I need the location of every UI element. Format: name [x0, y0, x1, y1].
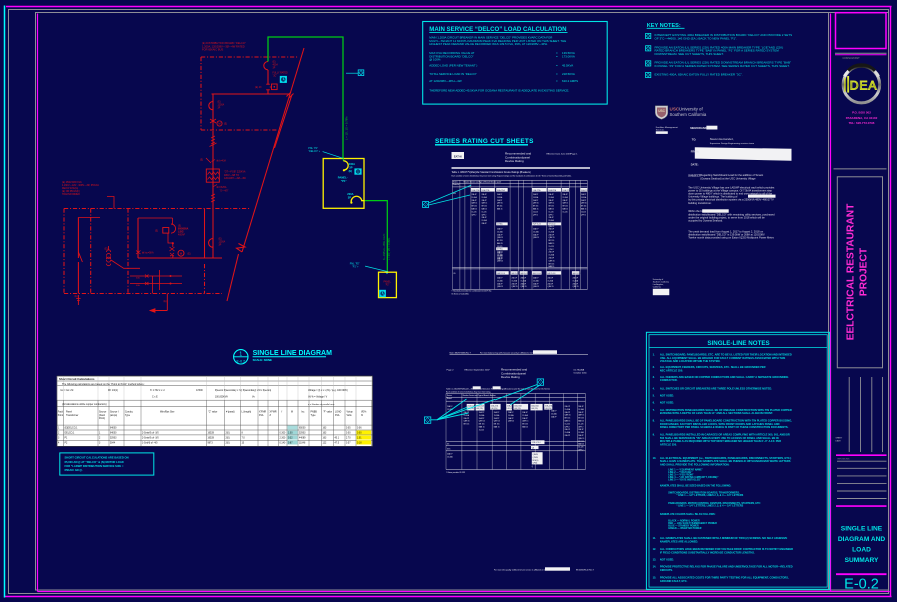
svg-text:20A 1P: 20A 1P	[578, 405, 584, 408]
svg-text:Wire/Bus Size: Wire/Bus Size	[160, 411, 175, 414]
svg-text:NAMEPLATES SHALL BE SIZED BASE: NAMEPLATES SHALL BE SIZED BASED ON THE F…	[660, 484, 732, 487]
svg-text:* LINE 1 — 1/4” LETTERS, LINE: * LINE 1 — 1/4” LETTERS, LINES 2, 3, & 4…	[677, 505, 744, 508]
svg-text:2(0): 2(0)	[226, 442, 230, 444]
svg-text:20A 1P: 20A 1P	[551, 410, 557, 413]
svg-text:3P: 3P	[273, 68, 276, 70]
svg-text:173.0KVA: 173.0KVA	[562, 54, 575, 58]
svg-text:Transformer: Transformer	[66, 414, 79, 417]
svg-text:20A 1P: 20A 1P	[479, 411, 485, 414]
svg-text:QBH 15: QBH 15	[549, 203, 555, 205]
svg-text:Effective September 2007: Effective September 2007	[465, 369, 491, 372]
svg-text:Table 1. 480/277V(Max)Vac Stan: Table 1. 480/277V(Max)Vac Standard Combi…	[452, 171, 531, 174]
svg-text:QBH 15: QBH 15	[548, 286, 554, 288]
svg-text:“P1”: “P1”	[341, 179, 348, 183]
svg-text:QBH 15: QBH 15	[533, 237, 539, 239]
svg-text:BAB 15: BAB 15	[522, 426, 528, 429]
svg-text:QBH 15: QBH 15	[549, 260, 555, 262]
svg-text:3P: 3P	[349, 165, 352, 169]
svg-text:AND SHALL PROVIDE THE FOLLOWI: AND SHALL PROVIDE THE FOLLOWING INFORMAT…	[660, 462, 730, 466]
svg-text:© Eaton provides 65 XXX: © Eaton provides 65 XXX	[446, 471, 466, 474]
svg-text:NAMEPLATE COLORS SHALL BE AS F: NAMEPLATE COLORS SHALL BE AS FOLLOWS:	[660, 513, 716, 516]
svg-text:9873: 9873	[208, 442, 214, 444]
svg-text:ARTICLE 250.: ARTICLE 250.	[660, 442, 677, 446]
svg-text:QPH 2: QPH 2	[497, 249, 502, 251]
svg-text:11048: 11048	[299, 442, 306, 444]
svg-text:USC: USC	[658, 109, 665, 113]
svg-text:CONDUCTOR.: CONDUCTOR.	[660, 378, 678, 382]
svg-text:EAT·N: EAT·N	[454, 154, 462, 158]
svg-text:The following calculations are: The following calculations are based on …	[62, 383, 145, 386]
svg-text:Steven Hernandez,: Steven Hernandez,	[710, 137, 734, 141]
svg-text:PNBB: PNBB	[311, 412, 318, 414]
svg-text:© Standard pre-feeders for com: © Standard pre-feeders for combination l…	[452, 290, 492, 293]
svg-text:2.: 2.	[653, 365, 655, 369]
svg-text:65,000 AIC@ AT “DELCO” & (N): 65,000 AIC@ AT “DELCO” & (N) MOTOR LOAD	[65, 460, 124, 464]
svg-text:FULLY RATED: FULLY RATED	[273, 72, 289, 75]
svg-text:E-0.2: E-0.2	[237, 360, 246, 364]
svg-text:20A 2P: 20A 2P	[549, 257, 555, 260]
svg-text:Panel: Panel	[66, 412, 72, 414]
svg-text:%: %	[361, 415, 363, 417]
svg-text:1.00: 1.00	[288, 433, 293, 435]
svg-text:15-30A: 15-30A	[522, 414, 528, 417]
svg-text:Breaker Device and Type of Bra: Breaker Device and Type of Branch Breake…	[464, 181, 502, 184]
svg-text:Series: Series	[453, 181, 458, 184]
svg-text:QPH 2: QPH 2	[533, 214, 538, 216]
svg-text:Note: 480/575V(M) Rev 7: Note: 480/575V(M) Rev 7	[450, 352, 471, 355]
svg-text:HIGHEST PEAK DEMAND VALUE RECO: HIGHEST PEAK DEMAND VALUE RECORDED WAS 1…	[429, 42, 548, 46]
svg-text:0.300: 0.300	[280, 433, 286, 435]
svg-text:15-30A: 15-30A	[549, 230, 555, 233]
svg-text:218.5KVA: 218.5KVA	[562, 72, 575, 76]
svg-text:LGE (22k): LGE (22k)	[491, 408, 498, 410]
svg-text:L (length): L (length)	[242, 411, 252, 414]
svg-text:(E): (E)	[218, 102, 221, 104]
svg-text:BR 155: BR 155	[578, 418, 584, 420]
svg-text:2-Sets(4) of -3/0: 2-Sets(4) of -3/0	[142, 437, 159, 440]
svg-text:20A 1P: 20A 1P	[497, 228, 503, 231]
svg-text:45.1: 45.1	[335, 438, 340, 440]
svg-text:⊠ I=625A: ⊠ I=625A	[217, 186, 227, 189]
svg-text:PASADENA, CA 91102: PASADENA, CA 91102	[846, 116, 878, 120]
svg-text:13.: 13.	[653, 557, 657, 561]
svg-text:Southern California: Southern California	[670, 112, 707, 117]
svg-text:Each condition of series liste: Each condition of series listed below, t…	[452, 174, 573, 177]
svg-text:EXISTING 400A, 65KAIC EATON FU: EXISTING 400A, 65KAIC EATON FULLY RATED …	[655, 72, 743, 76]
svg-text:1200A: 1200A	[219, 241, 226, 244]
svg-text:Voltage = (l) x L x (%) / (e.g: Voltage = (l) x L x (%) / (e.g. 100 000V…	[308, 389, 348, 392]
svg-text:Type: Type	[125, 415, 131, 417]
svg-text:14.: 14.	[653, 565, 657, 569]
svg-text:(E) OR 65KVA(F): (E) OR 65KVA(F)	[62, 190, 80, 193]
svg-text:52903: 52903	[299, 433, 306, 435]
svg-text:GHB 15-100: GHB 15-100	[497, 273, 506, 275]
svg-text:47.5: 47.5	[335, 442, 340, 444]
svg-text:MULTIPLE PANELS AS REQUIRED WI: MULTIPLE PANELS AS REQUIRED WITH TOP MOS…	[660, 439, 781, 443]
svg-text:“DELCO” +: “DELCO” +	[308, 150, 320, 153]
svg-text:2(0): 2(0)	[226, 438, 230, 440]
svg-text:KVA: KVA	[335, 414, 340, 417]
svg-text:(All calculations utilize copp: (All calculations utilize copper conduct…	[62, 403, 107, 406]
svg-text:BR 155: BR 155	[482, 206, 487, 208]
svg-text:=: =	[556, 54, 558, 58]
svg-text:20A 1P: 20A 1P	[512, 277, 518, 280]
svg-text:(E): (E)	[164, 301, 167, 303]
svg-text:For more balance buy with meas: For more balance buy with measure secure…	[480, 352, 533, 355]
svg-text:HQP 15-20: HQP 15-20	[533, 224, 541, 226]
svg-text:GROUND FAULT, ETC.: GROUND FAULT, ETC.	[660, 579, 688, 583]
svg-text:DATE:: DATE:	[691, 162, 699, 166]
svg-text:15-30A: 15-30A	[533, 279, 539, 282]
svg-text:QBHW,: QBHW,	[533, 454, 539, 456]
svg-text:20A 2P: 20A 2P	[578, 434, 584, 437]
svg-text:15-30A: 15-30A	[578, 408, 584, 411]
svg-text:15-30A: 15-30A	[549, 254, 555, 257]
svg-text:REVISIONS: REVISIONS	[838, 459, 850, 461]
svg-text:4.: 4.	[653, 387, 655, 391]
svg-text:KVA: KVA	[259, 414, 264, 417]
svg-text:1-Set(4) of -4/0: 1-Set(4) of -4/0	[142, 441, 158, 444]
svg-text:1: 1	[239, 351, 242, 357]
svg-text:EELCTRICAL RESTAURANT: EELCTRICAL RESTAURANT	[846, 203, 857, 340]
svg-text:SHEET: SHEET	[836, 438, 843, 440]
svg-text:15-30A: 15-30A	[497, 279, 503, 282]
svg-text:20A 2P: 20A 2P	[497, 282, 503, 285]
svg-text:QBH 15: QBH 15	[578, 438, 584, 440]
svg-text:QBH 15: QBH 15	[472, 203, 478, 205]
svg-text:0.06: 0.06	[357, 428, 362, 430]
svg-text:DELTA WYE(G): DELTA WYE(G)	[62, 187, 78, 190]
svg-text:20A 2P: 20A 2P	[494, 417, 500, 420]
svg-text:QPH 2: QPH 2	[549, 249, 554, 251]
svg-text:QBH 15: QBH 15	[497, 260, 503, 262]
svg-text:15-30A: 15-30A	[508, 414, 514, 417]
svg-text:20A 2P: 20A 2P	[548, 282, 554, 285]
svg-text:FOR 65KAIC BUS: FOR 65KAIC BUS	[202, 48, 223, 52]
svg-text:Facilities Management: Facilities Management	[656, 126, 678, 129]
svg-text:October 2011: October 2011	[574, 371, 588, 374]
svg-text:400A: 400A	[273, 64, 279, 67]
svg-text:BAB 15: BAB 15	[497, 242, 503, 245]
svg-text:5.: 5.	[653, 394, 655, 398]
svg-text:NOT USED.: NOT USED.	[660, 394, 674, 398]
svg-text:0.18: 0.18	[357, 442, 362, 444]
svg-text:Page 2: Page 2	[447, 370, 455, 372]
svg-text:15-30A: 15-30A	[497, 230, 503, 233]
svg-text:Point): Point)	[99, 417, 105, 420]
svg-text:@ 100%: @ 100%	[429, 58, 441, 62]
svg-text:20A 1P: 20A 1P	[573, 277, 579, 280]
svg-text:01-TB-08A: 01-TB-08A	[574, 369, 585, 372]
svg-text:PROJECT: PROJECT	[859, 247, 870, 296]
svg-text:BR 155: BR 155	[533, 206, 538, 208]
svg-text:(Fault: (Fault	[99, 414, 105, 417]
svg-text:=: =	[556, 79, 558, 83]
svg-text:Services: Services	[656, 129, 665, 132]
svg-text:20A 2P: 20A 2P	[464, 417, 470, 420]
svg-text:52903: 52903	[110, 438, 117, 440]
svg-text:QPH 2: QPH 2	[472, 214, 477, 216]
svg-text:QBH 15: QBH 15	[533, 203, 539, 205]
svg-text:VOLTAGE AND LOCATION WITHIN: VOLTAGE AND LOCATION WITHIN THE SYSTEM.	[660, 359, 721, 363]
svg-text:20A 2P: 20A 2P	[497, 233, 503, 236]
svg-text:20A 2P: 20A 2P	[533, 282, 539, 285]
svg-text:20A 2P: 20A 2P	[549, 233, 555, 236]
svg-text:SINGLE LINE: SINGLE LINE	[841, 526, 883, 533]
svg-text:DELCO,1: DELCO,1	[65, 433, 76, 435]
svg-text:QBH 15: QBH 15	[578, 415, 584, 417]
svg-text:TEL: 626.773.0796: TEL: 626.773.0796	[849, 121, 875, 125]
svg-text:PANEL-: PANEL-	[338, 175, 348, 179]
svg-text:“G—4/0”: “G—4/0”	[220, 190, 229, 192]
svg-text:QBH 15: QBH 15	[464, 421, 470, 423]
svg-text:15-30A: 15-30A	[447, 455, 453, 458]
svg-text:Device Rating: Device Rating	[505, 159, 524, 163]
svg-text:Each condition of series liste: Each condition of series listed below, t…	[446, 390, 491, 393]
svg-text:2(0): 2(0)	[226, 433, 230, 435]
svg-text:LINE 5 — “DATE INSTALLED”: LINE 5 — “DATE INSTALLED”	[668, 478, 701, 481]
svg-text:SUMMARY: SUMMARY	[845, 557, 879, 564]
svg-text:20A 2P: 20A 2P	[508, 417, 514, 420]
svg-text:NAMEPLATES ARE ALLOWED.: NAMEPLATES ARE ALLOWED.	[660, 540, 699, 544]
svg-text:TO:: TO:	[692, 138, 697, 142]
svg-text:15-30A: 15-30A	[512, 279, 518, 282]
svg-text:3P: 3P	[218, 108, 221, 110]
svg-text:LOAD: LOAD	[852, 547, 871, 554]
svg-text:20A 1P: 20A 1P	[522, 411, 528, 414]
svg-text:12.: 12.	[653, 547, 657, 551]
svg-text:University of: University of	[679, 107, 703, 112]
svg-text:44089: 44089	[299, 438, 306, 440]
svg-text:65 Series of rails (480): 65 Series of rails (480)	[452, 292, 469, 295]
svg-text:0.57: 0.57	[346, 442, 351, 444]
svg-text:BR 155: BR 155	[563, 206, 568, 208]
svg-text:QPH 2: QPH 2	[482, 214, 487, 216]
svg-text:QPHW,: QPHW,	[533, 457, 539, 459]
svg-text:(amps): (amps)	[110, 415, 117, 417]
svg-text:Twelve month data provided usi: Twelve month data provided using on Eato…	[688, 236, 774, 240]
svg-text:Effective Date June 2007: Effective Date June 2007	[547, 153, 572, 156]
svg-text:Device Rating: Device Rating	[501, 375, 520, 379]
svg-text:QBH 15: QBH 15	[581, 203, 587, 205]
svg-text:=: =	[556, 72, 558, 76]
svg-text:building transformer.: building transformer.	[688, 201, 712, 205]
svg-text:# (paral): # (paral)	[226, 411, 235, 414]
svg-text:IF FIELD CONDITIONS SUBSTANTIA: IF FIELD CONDITIONS SUBSTANTIALLY INCREA…	[660, 551, 755, 555]
svg-text:SERIES RATING CUT SHEETS: SERIES RATING CUT SHEETS	[435, 138, 534, 145]
svg-text:15-30A: 15-30A	[551, 412, 557, 415]
svg-text:QBH 15: QBH 15	[508, 421, 514, 423]
svg-text:L = 15’, 1S = 0.79%: L = 15’, 1S = 0.79%	[345, 116, 349, 140]
svg-text:BAB 15: BAB 15	[578, 420, 584, 423]
svg-text:2.70: 2.70	[346, 438, 351, 440]
svg-text:BAB 15: BAB 15	[549, 265, 555, 268]
svg-text:CH 15-50: CH 15-50	[548, 224, 555, 226]
svg-text:⊠ Iₗₗ=43A: ⊠ Iₗₗ=43A	[217, 160, 227, 163]
svg-text:11.: 11.	[653, 536, 657, 540]
svg-text:8.: 8.	[653, 419, 655, 423]
svg-text:64000: 64000	[110, 433, 117, 435]
svg-text:C x E: C x E	[152, 396, 158, 398]
svg-text:Source: Source	[99, 411, 107, 414]
svg-text:15-30A: 15-30A	[494, 414, 500, 417]
svg-text:Volts: Volts	[347, 414, 353, 417]
svg-text:3—#3/0+1—#6G, 1¼”C: 3—#3/0+1—#6G, 1¼”C	[383, 233, 386, 260]
svg-text:NEC ARTICLE 250.: NEC ARTICLE 250.	[660, 369, 683, 373]
svg-text:Vdrop: Vdrop	[347, 411, 354, 414]
svg-text:6.: 6.	[653, 401, 655, 405]
svg-text:QBH 15: QBH 15	[494, 421, 500, 423]
svg-text:2-Sets(4) of -3/0: 2-Sets(4) of -3/0	[142, 432, 159, 435]
svg-text:15-125: 15-125	[549, 246, 554, 248]
svg-text:20A 1P: 20A 1P	[578, 428, 584, 431]
svg-text:LGE (22k): LGE (22k)	[531, 408, 538, 410]
svg-text:(E): (E)	[273, 62, 276, 64]
svg-text:QBH 15: QBH 15	[573, 286, 579, 288]
svg-text:BAB 15: BAB 15	[565, 420, 571, 423]
svg-text:BAB 15: BAB 15	[479, 426, 485, 429]
svg-text:3.: 3.	[653, 375, 655, 379]
svg-text:AT 120/208V—3PH—4W: AT 120/208V—3PH—4W	[429, 79, 462, 83]
svg-text:QPH 2: QPH 2	[565, 426, 570, 428]
svg-text:QPH 2: QPH 2	[578, 450, 583, 452]
svg-text:(E)DELCO,1: (E)DELCO,1	[65, 428, 79, 430]
svg-text:GREEN — INVERTER POWER: GREEN — INVERTER POWER	[668, 528, 701, 530]
svg-text:7.: 7.	[653, 408, 655, 412]
svg-text:QBH 15: QBH 15	[497, 203, 503, 205]
svg-text:(E): (E)	[349, 169, 353, 173]
svg-text:DATE: DATE	[836, 439, 842, 442]
svg-text:20A 1P: 20A 1P	[548, 277, 554, 280]
svg-text:20A 1P: 20A 1P	[447, 453, 453, 456]
svg-text:BR 155: BR 155	[497, 240, 503, 242]
svg-text:M: M	[291, 412, 293, 414]
svg-text:QBH 15: QBH 15	[521, 286, 527, 288]
svg-text:SUBJECT:: SUBJECT:	[688, 173, 701, 177]
svg-text:OF 3”C—4#500, 1#3 GND (EA.) BA: OF 3”C—4#500, 1#3 GND (EA.) BACK TO NEW …	[655, 36, 738, 40]
svg-text:BR 155: BR 155	[565, 418, 571, 420]
svg-text:DOWNSTREAM. SEE CUT SHEETS, T: DOWNSTREAM. SEE CUT SHEETS, THIS SHEET.	[655, 52, 724, 56]
svg-text:0.140: 0.140	[280, 442, 286, 444]
svg-text:QBH 15: QBH 15	[563, 203, 569, 205]
svg-text:15-125: 15-125	[497, 246, 502, 248]
svg-text:ADDED LOAD (PER NEW TENANT ): ADDED LOAD (PER NEW TENANT )	[429, 63, 477, 67]
svg-text:Fault: Fault	[58, 411, 63, 414]
svg-text:BR 155: BR 155	[549, 206, 554, 208]
svg-text:65KAIC AIC@.: 65KAIC AIC@.	[65, 468, 83, 472]
svg-text:120/208Y—3Ø—4W: 120/208Y—3Ø—4W	[224, 177, 247, 180]
svg-text:BAB 15: BAB 15	[494, 426, 500, 429]
svg-text:20A 2P: 20A 2P	[497, 257, 503, 260]
svg-text:20A 1P: 20A 1P	[494, 411, 500, 414]
svg-text:QP(S): QP(S)	[533, 463, 538, 465]
svg-text:Rated: Rated	[447, 397, 452, 400]
svg-text:(E): (E)	[219, 239, 222, 241]
svg-text:20A 1P: 20A 1P	[521, 277, 527, 280]
svg-text:QBH 15: QBH 15	[549, 237, 555, 239]
svg-text:15-30A: 15-30A	[521, 279, 527, 282]
svg-text:SCALE: NONE: SCALE: NONE	[253, 358, 272, 362]
svg-text:15-125: 15-125	[533, 211, 538, 213]
svg-text:45.5KVA: 45.5KVA	[562, 63, 573, 67]
svg-text:20A 1P: 20A 1P	[549, 251, 555, 254]
svg-text:100,000KVA: 100,000KVA	[215, 395, 228, 398]
svg-text:Point: Point	[58, 414, 64, 417]
svg-text:20A 1P: 20A 1P	[533, 228, 539, 231]
svg-text:1.: 1.	[653, 353, 655, 357]
svg-text:64000: 64000	[110, 428, 117, 430]
svg-text:15-30A: 15-30A	[479, 414, 485, 417]
svg-text:Isc = Isc x M: Isc = Isc x M	[61, 390, 74, 392]
svg-text:Source I: Source I	[110, 411, 119, 414]
svg-text:15-30A: 15-30A	[565, 431, 571, 434]
svg-text:Conduc: Conduc	[125, 412, 134, 414]
svg-text:If(secon If(secondary x f x) I: If(secon If(secondary x f x) If(secondar…	[215, 389, 271, 392]
svg-text:20A 2P: 20A 2P	[479, 417, 485, 420]
svg-text:Regarding Switchboard Load for: Regarding Switchboard Load for the addit…	[700, 173, 763, 177]
svg-text:A7300: A7300	[196, 389, 203, 392]
svg-text:E-0.2: E-0.2	[844, 577, 879, 593]
svg-text:GHB 15-100: GHB 15-100	[547, 273, 556, 275]
svg-text:QBH 15: QBH 15	[497, 286, 503, 288]
svg-text:ALL FEEDERS ARE BASED ON COPPE: ALL FEEDERS ARE BASED ON COPPER CONDUCTO…	[660, 375, 789, 379]
svg-text:f= 1.732 x L x I: f= 1.732 x L x I	[150, 390, 165, 392]
svg-text:TOTAL SERVICE LOAD IN “DELCO”: TOTAL SERVICE LOAD IN “DELCO”	[429, 72, 476, 76]
svg-text:(E): (E)	[200, 160, 203, 162]
svg-text:California: California	[653, 286, 662, 289]
svg-text:20A 1P: 20A 1P	[565, 428, 571, 431]
svg-text:(E) 4X: (E) 4X	[255, 87, 262, 89]
svg-text:BR 155: BR 155	[522, 424, 528, 426]
svg-text:15-125: 15-125	[479, 429, 484, 431]
svg-text:BR 155: BR 155	[549, 263, 555, 265]
svg-text:GHB 15-100: GHB 15-100	[511, 273, 520, 275]
svg-text:BR 155: BR 155	[581, 206, 586, 208]
svg-text:BRH(S): BRH(S)	[533, 460, 539, 462]
svg-text:ALL SWITCHES OR CIRCUIT BREAKE: ALL SWITCHES OR CIRCUIT BREAKERS ARE THR…	[660, 387, 772, 391]
svg-text:15-125: 15-125	[563, 211, 568, 213]
svg-text:GHB 15-100: GHB 15-100	[533, 273, 542, 275]
svg-text:SINGLE-LINE NOTES: SINGLE-LINE NOTES	[707, 340, 769, 347]
svg-text:15-30A: 15-30A	[548, 279, 554, 282]
svg-text:(E): (E)	[155, 231, 158, 233]
svg-text:610.2 AMPS: 610.2 AMPS	[562, 79, 578, 83]
svg-text:CONSULTANT: CONSULTANT	[843, 56, 861, 60]
svg-text:400A: 400A	[349, 162, 355, 166]
svg-text:NOT USED.: NOT USED.	[660, 557, 674, 561]
svg-text:15-30A: 15-30A	[464, 414, 470, 417]
svg-text:P.O. BOX 502: P.O. BOX 502	[852, 111, 871, 115]
svg-text:Rated at: Rated at	[453, 183, 460, 186]
svg-text:15-30A: 15-30A	[565, 408, 571, 411]
svg-text:15-30A: 15-30A	[533, 230, 539, 233]
svg-text:“F” value: “F” value	[323, 412, 333, 414]
svg-text:GHB 15-100: GHB 15-100	[520, 273, 529, 275]
svg-text:5044: 5044	[110, 442, 116, 444]
svg-text:X’FMR: X’FMR	[270, 412, 277, 414]
svg-text:20A 1P: 20A 1P	[533, 277, 539, 280]
svg-text:0.32: 0.32	[288, 438, 293, 440]
svg-text:=: =	[556, 63, 558, 67]
svg-text:BUSSING WITH A DEPTH OF LESS T: BUSSING WITH A DEPTH OF LESS THAN 14” AN…	[660, 411, 773, 415]
svg-text:3P: 3P	[219, 245, 222, 247]
svg-text:FROM:: FROM:	[691, 149, 700, 153]
svg-text:15-125: 15-125	[565, 423, 570, 425]
svg-text:20A 2P: 20A 2P	[578, 411, 584, 414]
svg-text:Breaker Device and Type of Bra: Breaker Device and Type of Branch Breake…	[463, 394, 496, 397]
svg-text:20A 2P: 20A 2P	[551, 415, 557, 418]
svg-text:1200A: 1200A	[218, 104, 225, 107]
